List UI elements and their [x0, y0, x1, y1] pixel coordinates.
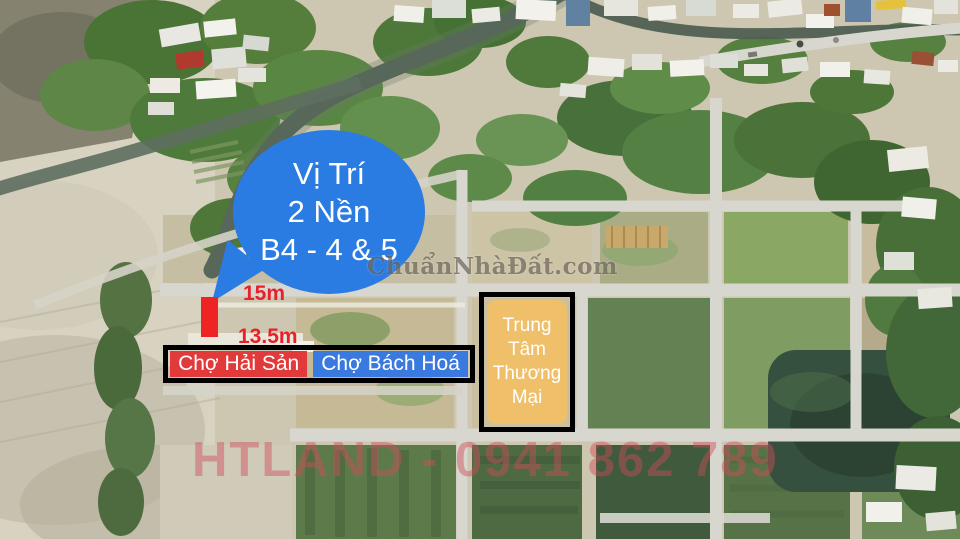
callout-line-1: Vị Trí: [293, 155, 365, 193]
plot-marker: [201, 297, 218, 337]
mall-sign-panel: Trung Tâm Thương Mại: [487, 300, 567, 424]
mall-line-3: Thương: [487, 362, 567, 386]
mall-line-4: Mại: [487, 386, 567, 410]
seafood-market-label: Chợ Hải Sản: [170, 351, 307, 377]
mall-line-1: Trung: [487, 314, 567, 338]
real-estate-aerial-ad: Vị Trí 2 Nền B4 - 4 & 5 ChuẩnNhàĐất.com …: [0, 0, 960, 539]
frontage-dimension-label: 15m: [243, 282, 285, 306]
market-sign: Chợ Hải Sản Chợ Bách Hoá: [163, 345, 475, 383]
callout-line-2: 2 Nền: [288, 193, 371, 231]
mall-sign: Trung Tâm Thương Mại: [479, 292, 575, 432]
agent-watermark: HTLAND - 0941 862 789: [192, 432, 779, 488]
mall-line-2: Tâm: [487, 338, 567, 362]
grocery-market-label: Chợ Bách Hoá: [313, 351, 468, 377]
site-watermark: ChuẩnNhàĐất.com: [367, 253, 618, 280]
